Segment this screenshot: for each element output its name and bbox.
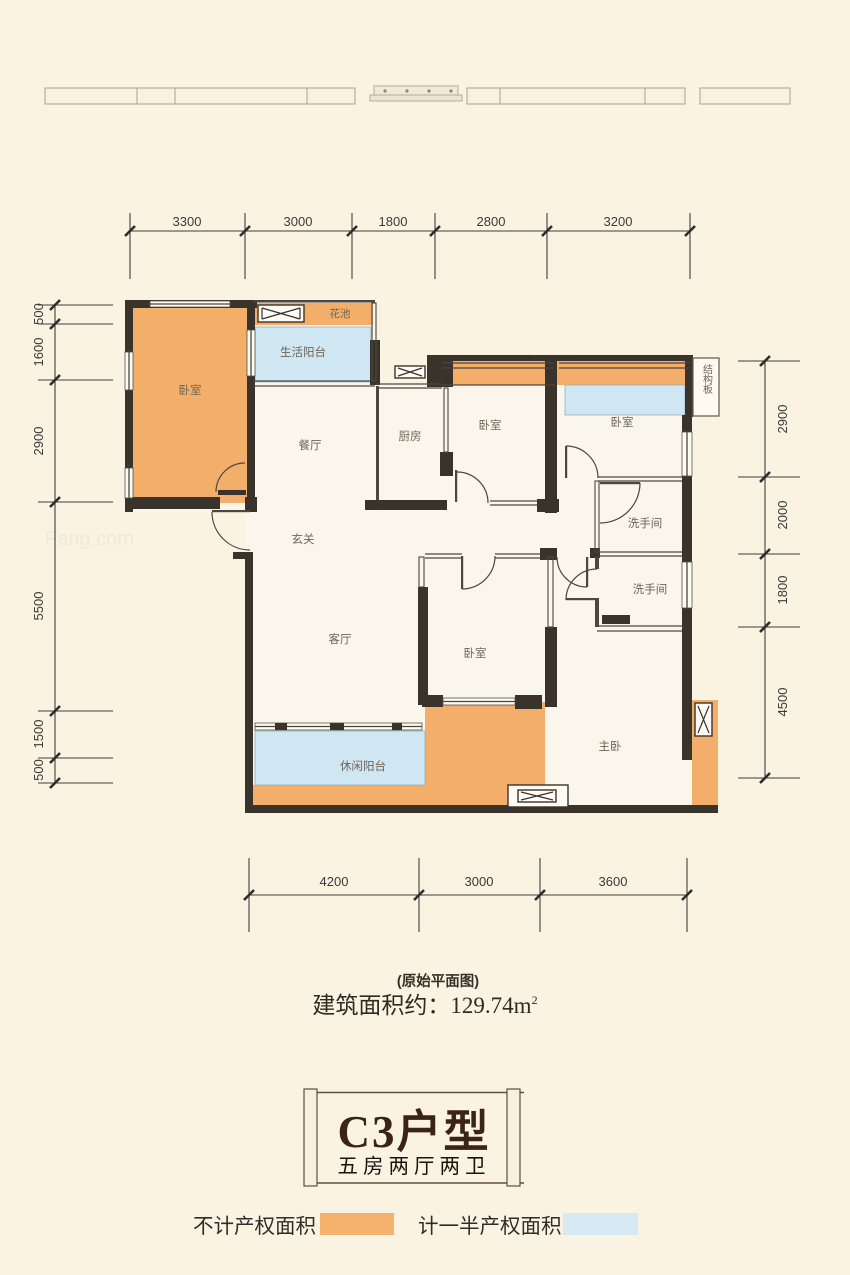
svg-text:2900: 2900: [775, 405, 790, 434]
fill-bedroom-top-left: [128, 303, 250, 503]
room-label-foyer: 玄关: [292, 532, 315, 546]
floorplan: 结构板 卧室 花池 生活阳台 餐厅 厨房 卧室 卧室 玄关 洗手间 洗手间 客厅…: [125, 300, 719, 813]
legend-label-half-property: 计一半产权面积: [418, 1215, 562, 1238]
strip-bar-left: [45, 88, 355, 104]
room-label-bedroom-top-right: 卧室: [611, 415, 634, 429]
fill-bay-window-mid: [440, 358, 555, 385]
svg-text:1800: 1800: [775, 576, 790, 605]
room-label-kitchen: 厨房: [399, 430, 422, 443]
title-banner: C3户型 五房两厅两卫: [304, 1089, 524, 1186]
svg-text:500: 500: [31, 759, 46, 781]
svg-text:3300: 3300: [173, 214, 202, 229]
svg-text:1500: 1500: [31, 720, 46, 749]
original-plan-caption: (原始平面图): [397, 972, 479, 990]
svg-text:2800: 2800: [477, 214, 506, 229]
svg-text:4500: 4500: [775, 688, 790, 717]
svg-text:3000: 3000: [465, 874, 494, 889]
room-label-bedroom-top-left: 卧室: [179, 383, 202, 397]
svg-text:3000: 3000: [284, 214, 313, 229]
unit-type-title: C3户型: [338, 1107, 491, 1157]
legend-label-no-property: 不计产权面积: [193, 1215, 316, 1238]
legend-swatch-blue: [563, 1213, 638, 1235]
building-area-text: 建筑面积约：129.74m2: [312, 993, 537, 1018]
room-label-bathroom-lower: 洗手间: [633, 582, 668, 596]
strip-bar-far-right: [700, 88, 790, 104]
svg-text:3600: 3600: [599, 874, 628, 889]
unit-type-subtitle: 五房两厅两卫: [338, 1155, 491, 1178]
svg-text:3200: 3200: [604, 214, 633, 229]
dimension-right: 2900 2000 1800 4500: [738, 356, 800, 783]
banner-end-left: [304, 1089, 317, 1186]
room-label-structure-board: 结构板: [701, 363, 713, 395]
fill-bedroom-right-strip: [565, 385, 685, 415]
svg-text:Fang.com: Fang.com: [45, 528, 134, 550]
svg-text:2000: 2000: [775, 501, 790, 530]
room-label-bedroom-mid: 卧室: [464, 646, 487, 660]
top-elevation-strip: [45, 86, 790, 104]
room-label-bathroom-upper: 洗手间: [628, 516, 663, 530]
svg-text:4200: 4200: [320, 874, 349, 889]
banner-end-right: [507, 1089, 520, 1186]
room-label-living-room: 客厅: [329, 632, 352, 646]
svg-text:1600: 1600: [31, 338, 46, 367]
room-label-service-balcony: 生活阳台: [280, 345, 326, 359]
fill-below-balcony: [253, 785, 425, 807]
legend-swatch-orange: [320, 1213, 394, 1235]
room-label-flower-bed: 花池: [330, 307, 351, 320]
area-note: (原始平面图) 建筑面积约：129.74m2: [312, 972, 537, 1018]
room-label-dining-room: 餐厅: [299, 438, 322, 452]
dimension-top: 3300 3000 1800 2800 3200: [125, 213, 695, 279]
svg-text:500: 500: [31, 303, 46, 325]
svg-text:5500: 5500: [31, 592, 46, 621]
floorplan-drawing: 房天下fang.com Fang.com 房天下fang.com 3300 30…: [0, 0, 850, 1275]
svg-text:1800: 1800: [379, 214, 408, 229]
svg-text:2900: 2900: [31, 427, 46, 456]
fill-bay-window-right: [557, 358, 700, 385]
dimension-bottom: 4200 3000 3600: [244, 858, 692, 932]
room-label-leisure-balcony: 休闲阳台: [340, 759, 386, 773]
room-label-bedroom-top-mid: 卧室: [479, 418, 502, 432]
floorplan-page: { "page": { "bg": "#faf3e1" }, "colors":…: [0, 0, 850, 1275]
fill-leisure-balcony: [255, 731, 425, 785]
legend: 不计产权面积 计一半产权面积: [193, 1213, 638, 1238]
room-label-master-bedroom: 主卧: [599, 740, 622, 753]
